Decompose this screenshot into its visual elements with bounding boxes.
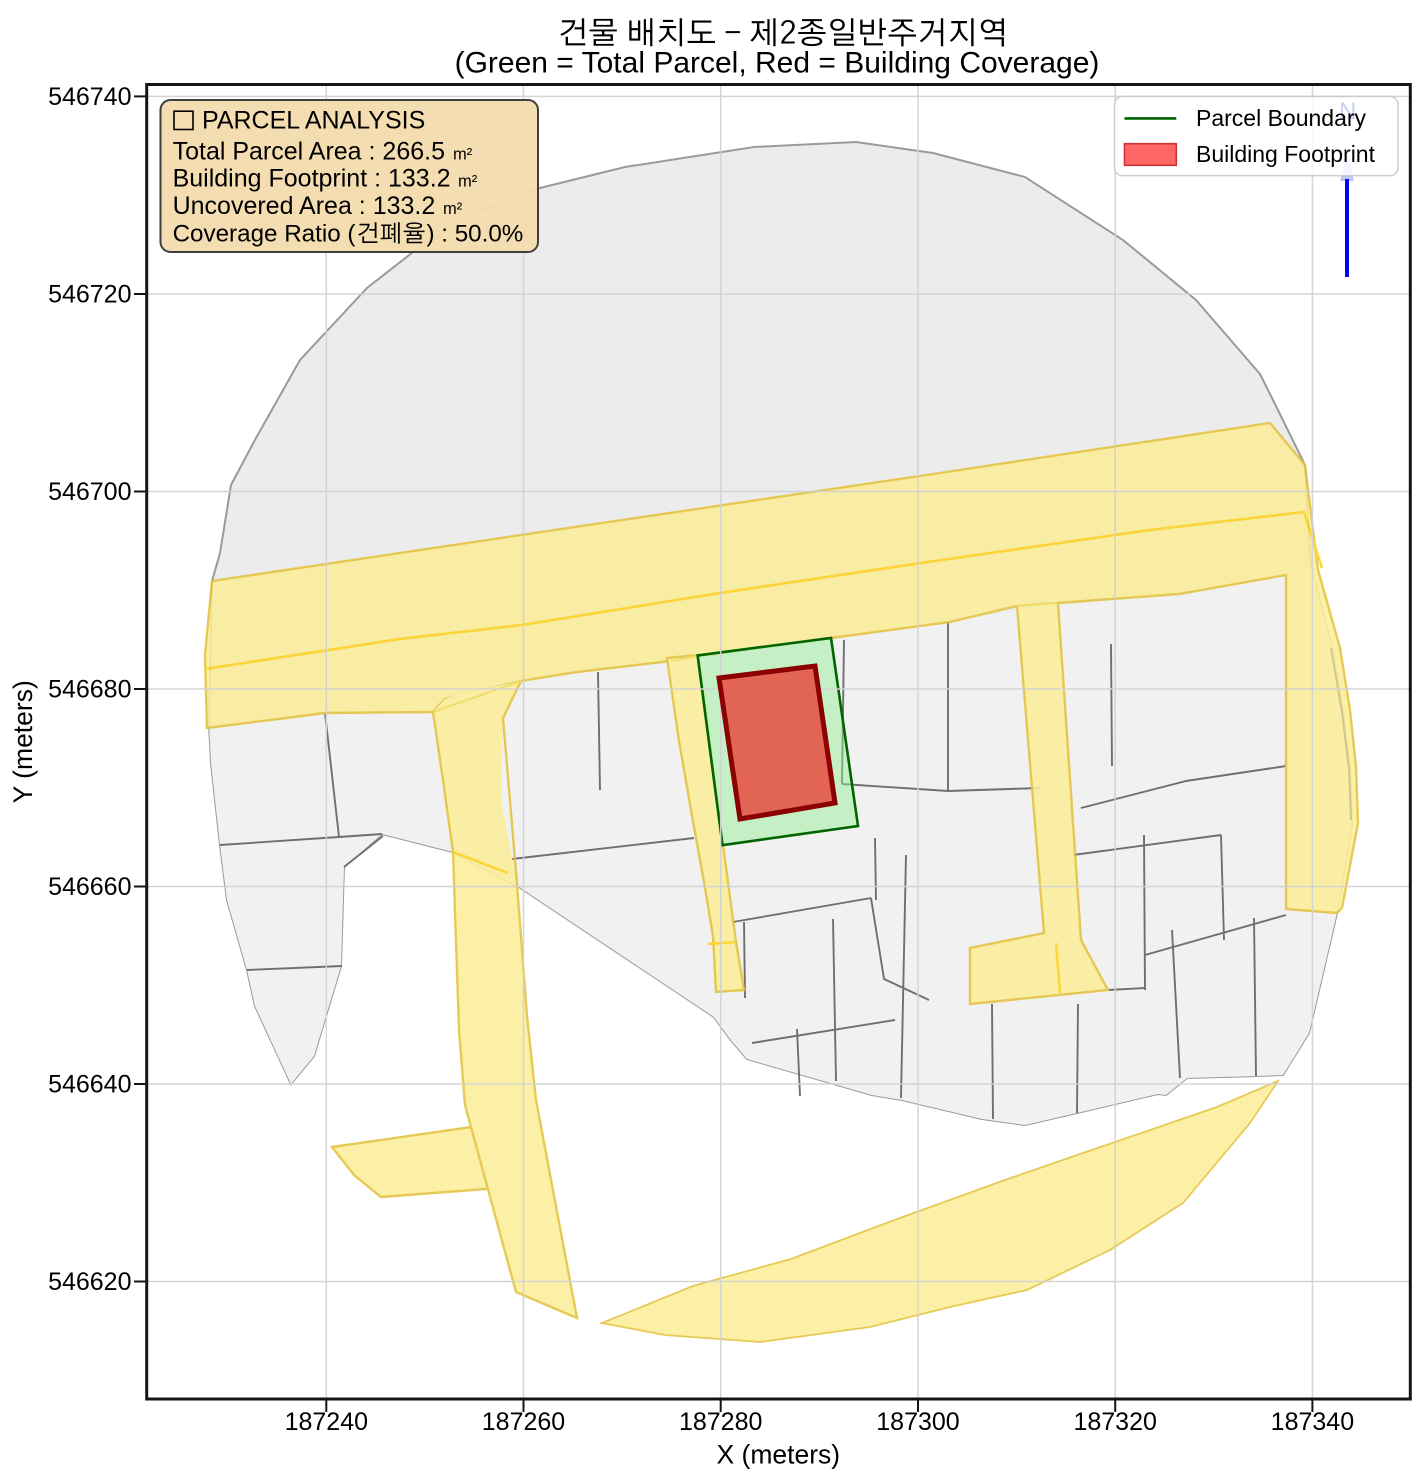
svg-text:Y (meters): Y (meters)	[8, 680, 38, 803]
svg-text:546700: 546700	[48, 478, 131, 506]
svg-text:546660: 546660	[48, 873, 131, 901]
svg-text:m²: m²	[443, 200, 463, 218]
svg-text:187240: 187240	[285, 1408, 368, 1436]
svg-text:Building Footprint : 133.2: Building Footprint : 133.2	[173, 165, 451, 193]
svg-text:Uncovered Area : 133.2: Uncovered Area : 133.2	[173, 192, 436, 220]
svg-text:546680: 546680	[48, 676, 131, 704]
svg-text:187320: 187320	[1073, 1408, 1156, 1436]
svg-text:187340: 187340	[1271, 1408, 1354, 1436]
svg-text:Coverage Ratio (: Coverage Ratio (	[173, 221, 356, 248]
svg-text:) : 50.0%: ) : 50.0%	[427, 221, 524, 248]
svg-text:Parcel Boundary: Parcel Boundary	[1196, 105, 1367, 131]
svg-text:m²: m²	[453, 146, 473, 164]
svg-text:Total Parcel Area : 266.5: Total Parcel Area : 266.5	[173, 138, 445, 166]
svg-text:187280: 187280	[679, 1408, 762, 1436]
svg-text:187260: 187260	[482, 1408, 565, 1436]
svg-text:PARCEL ANALYSIS: PARCEL ANALYSIS	[202, 107, 425, 135]
svg-text:546740: 546740	[48, 83, 131, 111]
svg-text:546640: 546640	[48, 1071, 131, 1099]
svg-text:X (meters): X (meters)	[716, 1440, 840, 1470]
svg-text:187300: 187300	[876, 1408, 959, 1436]
svg-text:546720: 546720	[48, 281, 131, 309]
svg-text:(Green = Total Parcel, Red = B: (Green = Total Parcel, Red = Building Co…	[455, 47, 1100, 80]
svg-text:m²: m²	[458, 173, 478, 191]
svg-text:Building Footprint: Building Footprint	[1196, 141, 1376, 167]
svg-text:546620: 546620	[48, 1268, 131, 1296]
